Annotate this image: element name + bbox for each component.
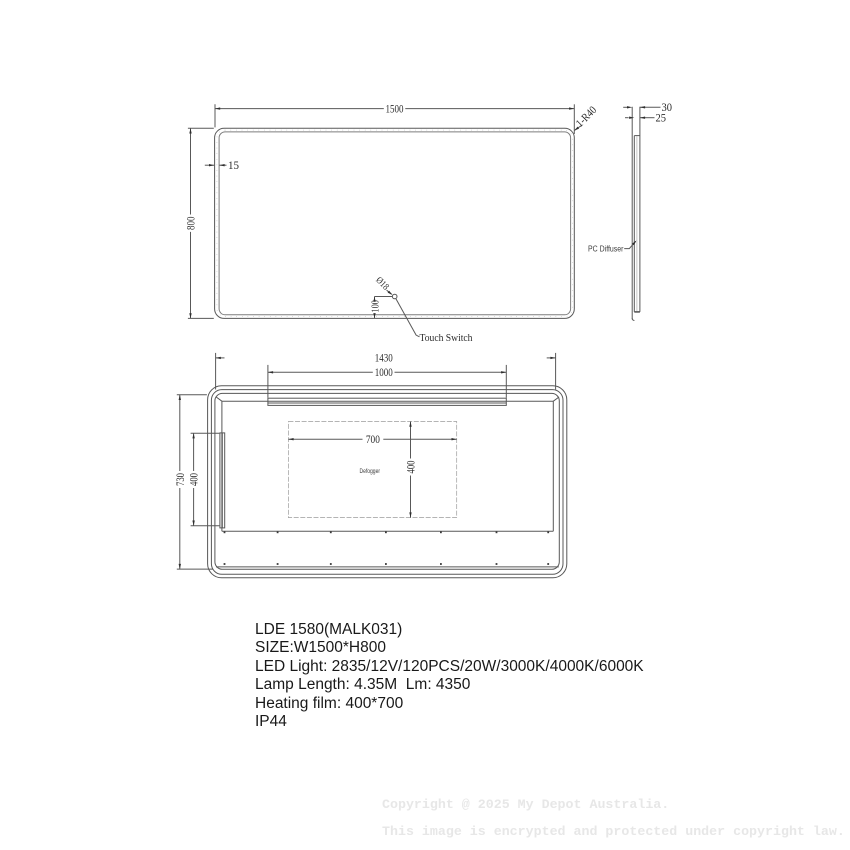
- svg-text:25: 25: [656, 113, 667, 125]
- svg-text:400: 400: [189, 473, 201, 486]
- svg-text:1000: 1000: [375, 367, 393, 379]
- svg-text:1430: 1430: [375, 353, 393, 365]
- svg-text:1500: 1500: [386, 103, 404, 115]
- svg-text:800: 800: [186, 216, 198, 230]
- svg-text:PC Diffuser: PC Diffuser: [588, 245, 624, 254]
- svg-text:1-R40: 1-R40: [574, 104, 600, 130]
- svg-text:100: 100: [370, 300, 382, 313]
- svg-text:700: 700: [366, 434, 380, 446]
- svg-text:15: 15: [228, 160, 239, 172]
- svg-text:400: 400: [406, 460, 418, 473]
- svg-text:730: 730: [175, 473, 187, 486]
- svg-text:Ø18: Ø18: [373, 276, 390, 293]
- svg-text:Touch Switch: Touch Switch: [420, 333, 474, 344]
- svg-text:Defogger: Defogger: [360, 468, 381, 475]
